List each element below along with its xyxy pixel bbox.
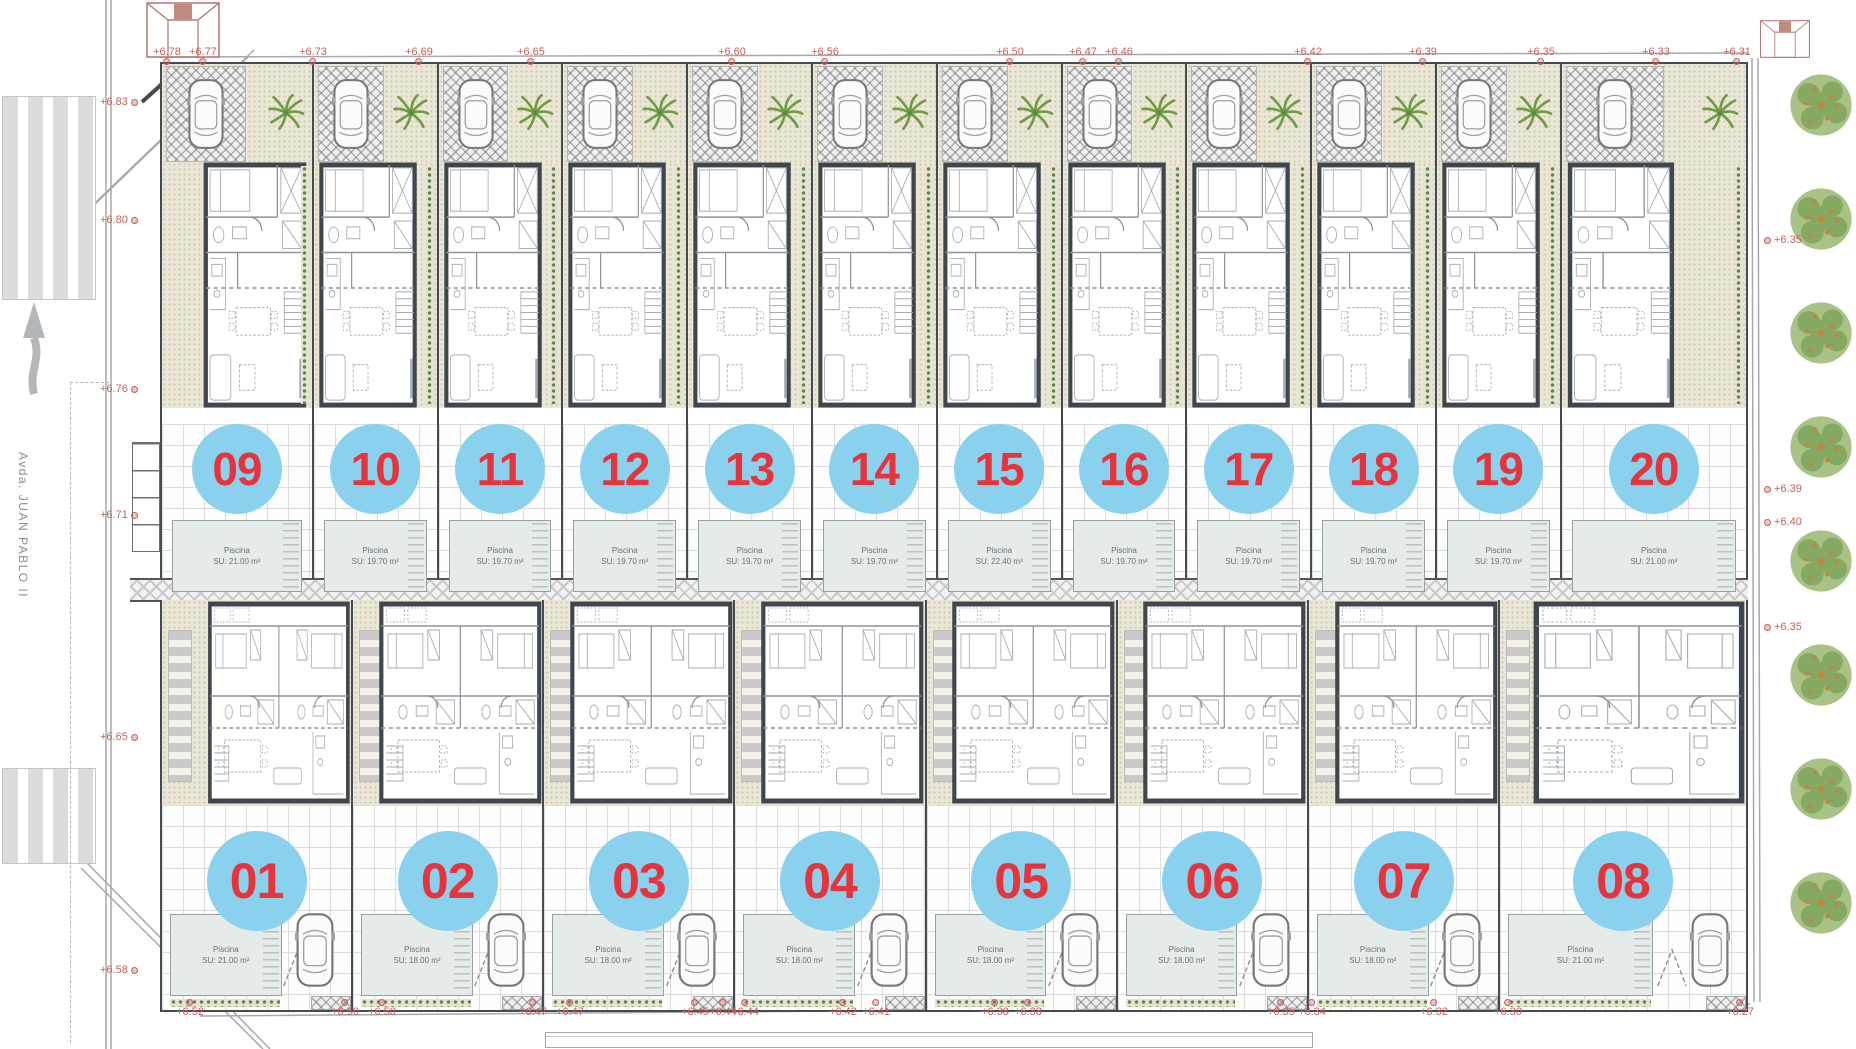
unit-plot: 06 PiscinaSU: 18.00 m²	[1116, 600, 1307, 1010]
stepping-stones	[1506, 630, 1530, 782]
driveway	[166, 66, 246, 162]
palm-tree-icon	[1513, 92, 1555, 134]
house-floorplan	[439, 162, 562, 408]
survey-point-icon	[1278, 999, 1285, 1006]
front-garden	[1562, 64, 1746, 162]
survey-point-icon	[530, 999, 537, 1006]
pool-area: SU: 19.70 m²	[726, 556, 773, 567]
elevation-value: +6.78	[153, 46, 181, 58]
driveway	[1316, 66, 1382, 162]
elevation-value: +6.76	[100, 383, 128, 395]
unit-number: 20	[1629, 442, 1678, 496]
pool-title: Piscina	[1158, 944, 1205, 955]
elevation-marker: +6.56	[811, 46, 839, 65]
house-floorplan	[314, 162, 437, 408]
unit-number-badge: 18	[1329, 424, 1419, 514]
pool-title: Piscina	[352, 545, 399, 556]
survey-point-icon	[200, 58, 207, 65]
unit-number: 19	[1474, 442, 1523, 496]
elevation-marker: +6.35	[1267, 999, 1295, 1018]
driveway-gate	[1076, 996, 1116, 1010]
elevation-value: +6.42	[1294, 46, 1322, 58]
ramp-symbol	[1653, 944, 1691, 990]
unit-plot: 09 PiscinaSU: 21.00 m²	[160, 64, 312, 580]
elevation-marker: +6.38	[981, 999, 1009, 1018]
elevation-marker: +6.32	[1420, 999, 1448, 1018]
front-garden	[938, 64, 1061, 162]
house-floorplan	[162, 600, 351, 805]
pool-label: PiscinaSU: 18.00 m²	[1158, 944, 1205, 966]
unit-number: 12	[600, 442, 649, 496]
pool: PiscinaSU: 22.40 m²	[948, 520, 1051, 592]
elevation-value: +6.73	[299, 46, 327, 58]
car-icon	[1251, 908, 1291, 992]
survey-point-icon	[873, 999, 880, 1006]
unit-plot: 17 PiscinaSU: 19.70 m²	[1185, 64, 1310, 580]
tree-icon	[1786, 70, 1856, 140]
pool: PiscinaSU: 21.00 m²	[1572, 520, 1736, 592]
elevation-value: +6.35	[1774, 234, 1802, 246]
car-icon	[1060, 908, 1100, 992]
pool-title: Piscina	[202, 944, 249, 955]
unit-plot: 08 PiscinaSU: 21.00 m²	[1498, 600, 1748, 1010]
terrace: 10 PiscinaSU: 19.70 m²	[314, 424, 437, 596]
unit-number: 06	[1186, 852, 1240, 910]
pool-area: SU: 19.70 m²	[1225, 556, 1272, 567]
unit-number: 08	[1596, 852, 1650, 910]
car-icon	[706, 73, 744, 155]
elevation-marker: +6.39	[1409, 46, 1437, 65]
pool: PiscinaSU: 19.70 m²	[324, 520, 427, 592]
pool-title: Piscina	[976, 545, 1023, 556]
terrace: 04 PiscinaSU: 18.00 m²	[735, 805, 924, 1010]
terrace: 14 PiscinaSU: 19.70 m²	[813, 424, 936, 596]
unit-number-badge: 15	[954, 424, 1044, 514]
floorplan-drawing	[1562, 162, 1680, 408]
pool-area: SU: 19.70 m²	[1350, 556, 1397, 567]
house-floorplan	[1500, 600, 1746, 805]
unit-plot: 05 PiscinaSU: 18.00 m²	[925, 600, 1116, 1010]
survey-point-icon	[840, 999, 847, 1006]
front-garden	[162, 64, 312, 162]
tree-icon	[1786, 754, 1856, 824]
hedge-strip	[1735, 166, 1744, 404]
elevation-value: +6.65	[517, 46, 545, 58]
elevation-value: +6.50	[331, 1006, 359, 1018]
pool-area: SU: 19.70 m²	[352, 556, 399, 567]
crosswalk-top	[2, 96, 96, 300]
pool-label: PiscinaSU: 21.00 m²	[1557, 944, 1604, 966]
elevation-marker: +6.50	[368, 999, 396, 1018]
pool-title: Piscina	[213, 545, 260, 556]
pool-title: Piscina	[1225, 545, 1272, 556]
car-icon	[581, 73, 619, 155]
pool-label: PiscinaSU: 21.00 m²	[1630, 545, 1677, 567]
car-icon	[457, 73, 495, 155]
elevation-marker: +6.35	[1764, 621, 1802, 633]
unit-number: 02	[421, 852, 475, 910]
elevation-marker: +6.52	[176, 999, 204, 1018]
terrace: 20 PiscinaSU: 21.00 m²	[1562, 424, 1746, 596]
driveway	[817, 66, 883, 162]
terrace: 12 PiscinaSU: 19.70 m²	[563, 424, 686, 596]
pool-label: PiscinaSU: 19.70 m²	[1100, 545, 1147, 567]
terrace: 18 PiscinaSU: 19.70 m²	[1312, 424, 1435, 596]
elevation-marker: +6.44	[731, 999, 759, 1018]
elevation-value: +6.39	[1774, 483, 1802, 495]
elevation-value: +6.38	[1014, 1006, 1042, 1018]
driveway	[692, 66, 758, 162]
elevation-value: +6.32	[1420, 1006, 1448, 1018]
elevation-marker: +6.47	[1069, 46, 1097, 65]
unit-number: 01	[230, 852, 284, 910]
survey-point-icon	[992, 999, 999, 1006]
survey-point-icon	[720, 999, 727, 1006]
palm-tree-icon	[1388, 92, 1430, 134]
elevation-marker: +6.47	[556, 999, 584, 1018]
floorplan-drawing	[1437, 162, 1545, 408]
hedge-strip	[1424, 166, 1433, 404]
survey-point-icon	[1309, 999, 1316, 1006]
unit-number: 15	[975, 442, 1024, 496]
car-icon	[677, 908, 717, 992]
floorplan-drawing	[1063, 162, 1171, 408]
car-icon	[831, 73, 869, 155]
unit-number-badge: 08	[1573, 831, 1673, 931]
pool: PiscinaSU: 19.70 m²	[698, 520, 801, 592]
terrace: 01 PiscinaSU: 21.00 m²	[162, 805, 351, 1010]
floorplan-drawing	[1312, 162, 1420, 408]
parking-lane-dashed	[70, 382, 109, 1043]
house-floorplan	[735, 600, 924, 805]
palm-tree-icon	[1699, 92, 1741, 134]
survey-point-icon	[1734, 58, 1741, 65]
unit-number: 05	[994, 852, 1048, 910]
front-garden	[563, 64, 686, 162]
pool-label: PiscinaSU: 18.00 m²	[393, 944, 440, 966]
floorplan-drawing	[439, 162, 547, 408]
survey-point-icon	[416, 58, 423, 65]
floorplan-drawing	[569, 600, 734, 805]
elevation-marker: +6.83	[100, 96, 138, 108]
unit-plot: 04 PiscinaSU: 18.00 m²	[733, 600, 924, 1010]
house-floorplan	[813, 162, 936, 408]
terrace: 07 PiscinaSU: 18.00 m²	[1309, 805, 1498, 1010]
survey-point-icon	[131, 512, 138, 519]
elevation-value: +6.58	[100, 964, 128, 976]
pool-label: PiscinaSU: 18.00 m²	[1349, 944, 1396, 966]
elevation-marker: +6.33	[1642, 46, 1670, 65]
elevation-value: +6.71	[100, 509, 128, 521]
elevation-value: +6.39	[1409, 46, 1437, 58]
car-icon	[187, 73, 225, 155]
unit-number-badge: 13	[705, 424, 795, 514]
front-garden	[1437, 64, 1560, 162]
unit-number: 07	[1377, 852, 1431, 910]
elevation-value: +6.31	[1723, 46, 1751, 58]
tree-icon	[1786, 298, 1856, 368]
pool-title: Piscina	[601, 545, 648, 556]
elevation-value: +6.69	[405, 46, 433, 58]
house-floorplan	[1118, 600, 1307, 805]
elevation-value: +6.42	[829, 1006, 857, 1018]
pool: PiscinaSU: 19.70 m²	[1447, 520, 1550, 592]
front-garden	[1063, 64, 1186, 162]
pool-area: SU: 18.00 m²	[1158, 955, 1205, 966]
elevation-marker: +6.35	[1764, 234, 1802, 246]
driveway	[443, 66, 509, 162]
unit-plot: 12 PiscinaSU: 19.70 m²	[561, 64, 686, 580]
elevation-marker: +6.65	[517, 46, 545, 65]
elevation-value: +6.56	[811, 46, 839, 58]
unit-plot: 02 PiscinaSU: 18.00 m²	[351, 600, 542, 1010]
house-floorplan	[688, 162, 811, 408]
survey-point-icon	[1420, 58, 1427, 65]
pool-title: Piscina	[726, 545, 773, 556]
hedge-strip	[800, 166, 809, 404]
pool-area: SU: 18.00 m²	[967, 955, 1014, 966]
car-icon	[486, 908, 526, 992]
elevation-value: +6.44	[731, 1006, 759, 1018]
survey-point-icon	[1653, 58, 1660, 65]
elevation-value: +6.35	[1527, 46, 1555, 58]
house-floorplan	[1562, 162, 1746, 408]
pool-label: PiscinaSU: 19.70 m²	[1225, 545, 1272, 567]
elevation-value: +6.50	[368, 1006, 396, 1018]
pool-label: PiscinaSU: 19.70 m²	[726, 545, 773, 567]
hedge-strip	[1299, 166, 1308, 404]
pool-area: SU: 18.00 m²	[1349, 955, 1396, 966]
house-floorplan	[563, 162, 686, 408]
site-plan-canvas: Avda. JUAN PABLO II	[0, 0, 1856, 1049]
survey-point-icon	[1764, 519, 1771, 526]
floorplan-drawing	[1142, 600, 1307, 805]
house-floorplan	[162, 162, 312, 408]
driveway	[1191, 66, 1257, 162]
pool-label: PiscinaSU: 19.70 m²	[352, 545, 399, 567]
front-garden	[813, 64, 936, 162]
pool-label: PiscinaSU: 19.70 m²	[1350, 545, 1397, 567]
pool-area: SU: 18.00 m²	[393, 955, 440, 966]
survey-point-icon	[342, 999, 349, 1006]
pool-area: SU: 21.00 m²	[1557, 955, 1604, 966]
unit-number: 17	[1224, 442, 1273, 496]
floorplan-drawing	[198, 162, 312, 408]
pool-title: Piscina	[1349, 944, 1396, 955]
unit-number: 14	[850, 442, 899, 496]
house-floorplan	[1187, 162, 1310, 408]
terrace: 15 PiscinaSU: 22.40 m²	[938, 424, 1061, 596]
unit-number-badge: 02	[398, 831, 498, 931]
floorplan-drawing	[951, 600, 1116, 805]
elevation-value: +6.47	[519, 1006, 547, 1018]
palm-tree-icon	[639, 92, 681, 134]
pool-label: PiscinaSU: 18.00 m²	[967, 944, 1014, 966]
row-units-09-20: 09 PiscinaSU: 21.00 m² 10	[160, 62, 1748, 580]
hedge-strip	[426, 166, 435, 404]
survey-point-icon	[379, 999, 386, 1006]
survey-point-icon	[742, 999, 749, 1006]
elevation-marker: +6.73	[299, 46, 327, 65]
unit-number: 18	[1349, 442, 1398, 496]
unit-number-badge: 09	[192, 424, 282, 514]
hedge-strip	[675, 166, 684, 404]
unit-plot: 07 PiscinaSU: 18.00 m²	[1307, 600, 1498, 1010]
hedge-strip	[550, 166, 559, 404]
elevation-value: +6.46	[1105, 46, 1133, 58]
elevation-value: +6.52	[176, 1006, 204, 1018]
survey-point-icon	[1007, 58, 1014, 65]
unit-number: 11	[477, 442, 524, 496]
terrace: 05 PiscinaSU: 18.00 m²	[927, 805, 1116, 1010]
pool-area: SU: 19.70 m²	[476, 556, 523, 567]
unit-plot: 19 PiscinaSU: 19.70 m²	[1435, 64, 1560, 580]
unit-number: 13	[725, 442, 774, 496]
elevation-marker: +6.30	[1494, 999, 1522, 1018]
palm-tree-icon	[265, 92, 307, 134]
pool-label: PiscinaSU: 22.40 m²	[976, 545, 1023, 567]
pool: PiscinaSU: 19.70 m²	[823, 520, 926, 592]
pool: PiscinaSU: 19.70 m²	[1073, 520, 1176, 592]
front-garden	[314, 64, 437, 162]
survey-point-icon	[131, 734, 138, 741]
hedge-strip	[1050, 166, 1059, 404]
elevation-marker: +6.69	[405, 46, 433, 65]
car-icon	[1442, 908, 1482, 992]
elevation-value: +6.80	[100, 214, 128, 226]
unit-number: 03	[612, 852, 666, 910]
floorplan-drawing	[688, 162, 796, 408]
unit-number-badge: 03	[589, 831, 689, 931]
survey-point-icon	[1764, 486, 1771, 493]
pool-area: SU: 18.00 m²	[776, 955, 823, 966]
unit-number-badge: 06	[1162, 831, 1262, 931]
palm-tree-icon	[1263, 92, 1305, 134]
pool-label: PiscinaSU: 19.70 m²	[1475, 545, 1522, 567]
unit-number: 10	[351, 442, 400, 496]
survey-point-icon	[131, 967, 138, 974]
car-icon	[1330, 73, 1368, 155]
unit-plot: 10 PiscinaSU: 19.70 m²	[312, 64, 437, 580]
pool: PiscinaSU: 19.70 m²	[573, 520, 676, 592]
terrace: 06 PiscinaSU: 18.00 m²	[1118, 805, 1307, 1010]
unit-plot: 01 PiscinaSU: 21.00 m²	[160, 600, 351, 1010]
survey-point-icon	[164, 58, 171, 65]
floorplan-drawing	[938, 162, 1046, 408]
unit-plot: 03 PiscinaSU: 18.00 m²	[542, 600, 733, 1010]
pool-title: Piscina	[851, 545, 898, 556]
elevation-marker: +6.47	[519, 999, 547, 1018]
elevation-value: +6.65	[100, 731, 128, 743]
pool-title: Piscina	[476, 545, 523, 556]
unit-number-badge: 17	[1204, 424, 1294, 514]
floorplan-drawing	[1334, 600, 1499, 805]
elevation-marker: +6.42	[1294, 46, 1322, 65]
terrace: 17 PiscinaSU: 19.70 m²	[1187, 424, 1310, 596]
house-floorplan	[1309, 600, 1498, 805]
pool-title: Piscina	[1630, 545, 1677, 556]
unit-number-badge: 05	[971, 831, 1071, 931]
unit-plot: 16 PiscinaSU: 19.70 m²	[1061, 64, 1186, 580]
pool-area: SU: 21.00 m²	[202, 955, 249, 966]
survey-point-icon	[729, 58, 736, 65]
pool-area: SU: 19.70 m²	[601, 556, 648, 567]
unit-number-badge: 12	[580, 424, 670, 514]
survey-point-icon	[1764, 624, 1771, 631]
pool-label: PiscinaSU: 21.00 m²	[213, 545, 260, 567]
terrace: 09 PiscinaSU: 21.00 m²	[162, 424, 312, 596]
tree-icon	[1786, 640, 1856, 710]
floorplan-drawing	[1532, 600, 1746, 805]
survey-point-icon	[1305, 58, 1312, 65]
unit-number-badge: 04	[780, 831, 880, 931]
meter-cabinets	[132, 442, 160, 552]
palm-tree-icon	[1014, 92, 1056, 134]
elevation-marker: +6.34	[1298, 999, 1326, 1018]
terrace: 11 PiscinaSU: 19.70 m²	[439, 424, 562, 596]
elevation-value: +6.83	[100, 96, 128, 108]
elevation-value: +6.35	[1267, 1006, 1295, 1018]
unit-number-badge: 20	[1609, 424, 1699, 514]
car-icon	[295, 908, 335, 992]
elevation-marker: +6.71	[100, 509, 138, 521]
elevation-value: +6.27	[1726, 1006, 1754, 1018]
driveway-gate	[1458, 996, 1498, 1010]
unit-plot: 11 PiscinaSU: 19.70 m²	[437, 64, 562, 580]
car-icon	[1205, 73, 1243, 155]
street-median-bar	[545, 1032, 1313, 1048]
palm-tree-icon	[514, 92, 556, 134]
elevation-marker: +6.65	[100, 731, 138, 743]
house-floorplan	[927, 600, 1116, 805]
survey-point-icon	[1764, 237, 1771, 244]
house-floorplan	[353, 600, 542, 805]
survey-point-icon	[1737, 999, 1744, 1006]
pool-area: SU: 19.70 m²	[851, 556, 898, 567]
car-icon	[1690, 908, 1730, 992]
floorplan-drawing	[378, 600, 543, 805]
floorplan-drawing	[760, 600, 925, 805]
pool-area: SU: 19.70 m²	[1475, 556, 1522, 567]
elevation-marker: +6.38	[1014, 999, 1042, 1018]
front-garden	[1312, 64, 1435, 162]
palm-tree-icon	[889, 92, 931, 134]
unit-number-badge: 14	[829, 424, 919, 514]
elevation-marker: +6.42	[829, 999, 857, 1018]
unit-number: 16	[1099, 442, 1148, 496]
pool-area: SU: 19.70 m²	[1100, 556, 1147, 567]
front-garden	[1187, 64, 1310, 162]
survey-point-icon	[310, 58, 317, 65]
pool-title: Piscina	[967, 944, 1014, 955]
driveway	[942, 66, 1008, 162]
front-garden	[439, 64, 562, 162]
pool-area: SU: 22.40 m²	[976, 556, 1023, 567]
elevation-value: +6.41	[862, 1006, 890, 1018]
elevation-value: +6.50	[996, 46, 1024, 58]
hedge-strip	[1549, 166, 1558, 404]
unit-number-badge: 10	[330, 424, 420, 514]
pool-title: Piscina	[1350, 545, 1397, 556]
front-garden	[688, 64, 811, 162]
survey-point-icon	[131, 217, 138, 224]
elevation-marker: +6.27	[1726, 999, 1754, 1018]
survey-point-icon	[692, 999, 699, 1006]
driveway	[1441, 66, 1507, 162]
unit-number-badge: 07	[1354, 831, 1454, 931]
elevation-marker: +6.31	[1723, 46, 1751, 65]
survey-point-icon	[1116, 58, 1123, 65]
